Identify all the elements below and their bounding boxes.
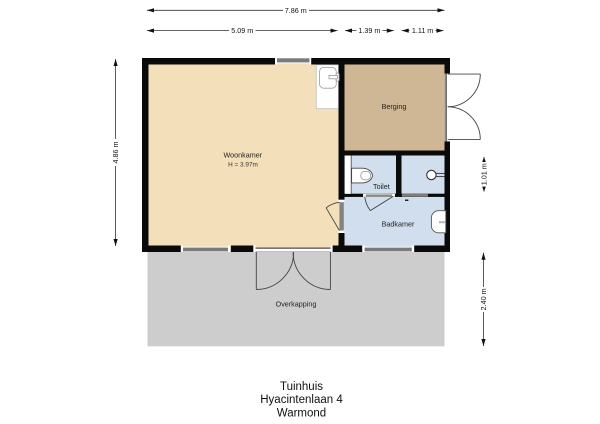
svg-text:Tuinhuis: Tuinhuis: [280, 381, 323, 393]
svg-text:Toilet: Toilet: [373, 182, 390, 191]
svg-text:2.40 m: 2.40 m: [479, 288, 488, 310]
svg-text:1.01 m: 1.01 m: [480, 163, 489, 185]
svg-text:5.09 m: 5.09 m: [231, 26, 253, 35]
svg-text:4.86 m: 4.86 m: [111, 142, 120, 164]
svg-text:1.39 m: 1.39 m: [358, 26, 380, 35]
svg-text:1.11 m: 1.11 m: [412, 26, 433, 35]
svg-text:7.86 m: 7.86 m: [285, 6, 307, 15]
svg-text:Warmond: Warmond: [277, 407, 326, 419]
svg-text:Hyacintenlaan 4: Hyacintenlaan 4: [260, 394, 343, 406]
svg-text:Berging: Berging: [382, 102, 407, 111]
svg-text:Woonkamer: Woonkamer: [223, 151, 262, 160]
svg-text:Overkapping: Overkapping: [276, 300, 317, 309]
svg-text:Badkamer: Badkamer: [382, 220, 415, 229]
svg-text:H = 3.97m: H = 3.97m: [228, 162, 258, 169]
